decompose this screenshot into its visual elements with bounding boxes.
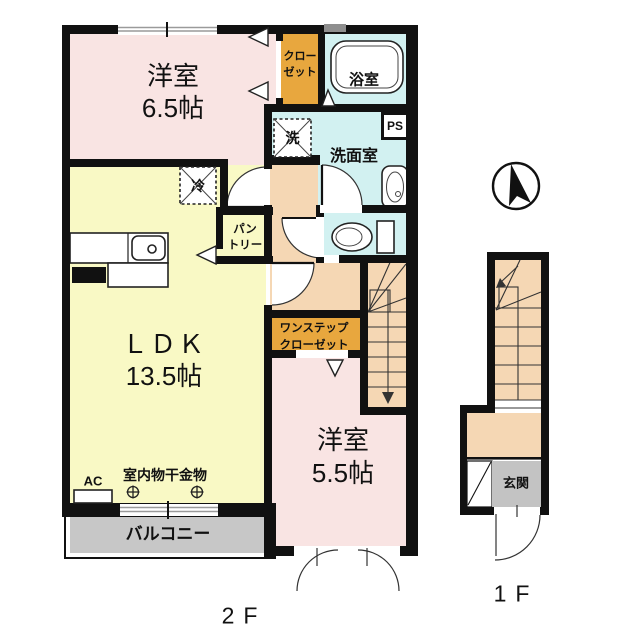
floor-plan: 洋室 6.5帖 クロー ゼット 浴室 洗 洗面室 PS 冷 パン トリー ＬＤＫ… [0, 0, 640, 640]
bedroom-6-5-label: 洋室 [147, 63, 199, 89]
fridge-label: 冷 [191, 179, 205, 193]
ac-label: AC [84, 475, 103, 488]
floor-1f-label: 1F [494, 583, 539, 606]
washroom-sink [382, 166, 408, 208]
bedroom-6-5-size: 6.5帖 [142, 95, 204, 121]
ldk-size: 13.5帖 [126, 363, 203, 389]
pantry-label-2: トリー [228, 240, 263, 252]
balcony-label: バルコニー [126, 526, 211, 543]
one-step-closet-label-1: ワンステップ [280, 323, 349, 335]
bathroom-label: 浴室 [349, 73, 379, 88]
closet-label-1: クロー [284, 52, 317, 63]
pantry-label-1: パン [233, 224, 257, 236]
kitchen-counter [70, 233, 168, 287]
closet-label-2: ゼット [284, 68, 317, 79]
indoor-laundry-label: 室内物干金物 [123, 468, 207, 482]
washroom-label: 洗面室 [330, 149, 378, 165]
entrance-hall-1f [467, 413, 541, 459]
toilet [332, 221, 394, 253]
floor-2f-label: 2F [222, 605, 267, 628]
kitchen-faucet [148, 245, 156, 253]
floor-plan-drawing [0, 0, 640, 640]
bedroom-5-5-label: 洋室 [317, 427, 369, 453]
ac-unit-box [74, 490, 112, 503]
entrance-label: 玄関 [503, 477, 529, 490]
one-step-closet-label-2: クローゼット [280, 340, 349, 352]
north-arrow-icon [493, 163, 539, 209]
kitchen-stove [72, 267, 106, 283]
pipe-space-label: PS [387, 120, 403, 132]
ldk-label: ＬＤＫ [122, 331, 206, 357]
bathroom-vent-window [324, 24, 346, 32]
bedroom-5-5-size: 5.5帖 [312, 460, 374, 486]
washer-label: 洗 [286, 131, 300, 145]
window-bedroom-6-5 [118, 22, 217, 37]
stairs-2f [366, 256, 406, 409]
